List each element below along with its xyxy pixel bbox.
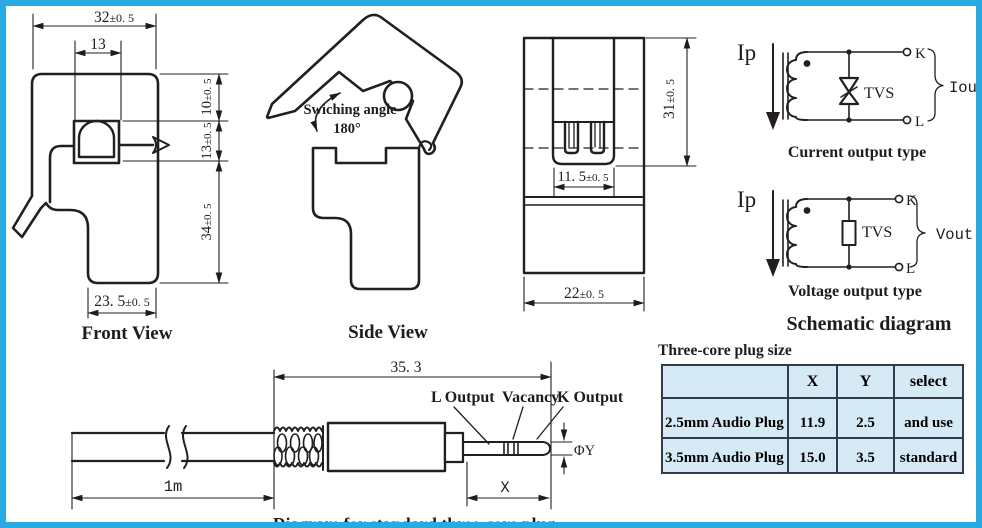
- table-row: 3.5mm Audio Plug 15.0 3.5 standard: [662, 438, 963, 473]
- table-header-row: X Y select: [662, 365, 963, 398]
- plug-x-cell: 15.0: [788, 438, 837, 473]
- plug-ring-grooves: [504, 442, 518, 455]
- current-terminal-k-label: K: [915, 46, 926, 62]
- voltage-terminal-l-label: L: [906, 261, 915, 277]
- schematic-section-title: Schematic diagram: [787, 313, 952, 335]
- side-angle-label: Swiching angle: [303, 102, 397, 118]
- current-brace: [928, 49, 943, 121]
- plug-handle: [328, 423, 445, 471]
- current-polarity-dot: [804, 60, 811, 67]
- current-tvs-triangle-bottom: [840, 92, 858, 104]
- plug-leader-lines: [454, 407, 563, 444]
- side-jaw-outline: [267, 15, 462, 154]
- front-dim-top: 32±0. 5: [94, 9, 134, 26]
- side-view: Swiching angle 180° Side View: [267, 15, 462, 343]
- plug-y-cell: 3.5: [837, 438, 894, 473]
- voltage-terminal-k-label: K: [906, 193, 917, 209]
- plug-boot-top-edge: [274, 428, 322, 432]
- side-angle-value: 180°: [333, 121, 361, 137]
- front-body-outline: [13, 74, 158, 283]
- header-y-cell: Y: [837, 365, 894, 398]
- plug-boot-coils: [274, 434, 322, 465]
- plug-diagram-caption: Diagram for standard three-core plug: [273, 514, 555, 522]
- current-terminal-l: [903, 116, 910, 123]
- back-dim-slot: 11. 5±0. 5: [557, 169, 609, 185]
- plug-name-cell: 3.5mm Audio Plug: [662, 438, 788, 473]
- voltage-ip-label: Ip: [737, 187, 756, 212]
- side-view-title: Side View: [348, 322, 428, 343]
- current-caption: Current output type: [788, 144, 926, 161]
- voltage-tvs-label: TVS: [862, 224, 892, 241]
- plug-dim-cable: 1m: [164, 478, 183, 496]
- plug-shaft: [463, 442, 543, 455]
- schematic-current: Ip TVS K L Iout Current output type: [737, 40, 976, 161]
- header-blank-cell: [662, 365, 788, 398]
- current-tvs-triangle-top: [840, 78, 858, 92]
- front-jaw-seam-left: [50, 146, 74, 202]
- front-dim-window-width: 13: [90, 36, 106, 53]
- plug-size-table: X Y select 2.5mm Audio Plug 11.9 2.5 and…: [661, 364, 964, 474]
- front-dimensions: [33, 14, 228, 318]
- back-view: 11. 5±0. 5 31±0. 5 22±0. 5: [524, 38, 696, 311]
- datasheet-canvas: 32±0. 5 13 10±0. 5 13±0. 5 34±0. 5 23. 5…: [0, 0, 982, 528]
- front-dim-bottom: 23. 5±0. 5: [94, 293, 150, 310]
- header-x-cell: X: [788, 365, 837, 398]
- front-view-title: Front View: [82, 323, 173, 344]
- plug-dim-diameter: ΦY: [574, 443, 596, 459]
- plug-select-cell: and use: [894, 398, 963, 438]
- plug-dim-x: X: [500, 479, 510, 497]
- current-terminal-k: [903, 48, 910, 55]
- current-terminal-l-label: L: [915, 114, 924, 130]
- current-ip-label: Ip: [737, 40, 756, 65]
- schematic-voltage: Ip TVS K L Vout Voltage output type Sche…: [737, 187, 973, 335]
- header-select-cell: select: [894, 365, 963, 398]
- voltage-ip-arrowhead: [766, 259, 780, 277]
- voltage-terminal-l: [895, 263, 902, 270]
- current-output-label: Iout: [949, 79, 976, 97]
- back-body-outline: [524, 38, 644, 273]
- plug-tip: [543, 442, 550, 455]
- voltage-caption: Voltage output type: [788, 283, 922, 300]
- voltage-tvs-box: [843, 221, 856, 245]
- front-view: 32±0. 5 13 10±0. 5 13±0. 5 34±0. 5 23. 5…: [13, 9, 228, 344]
- back-dim-height: 31±0. 5: [661, 79, 678, 119]
- front-dim-h13: 13±0. 5: [199, 122, 215, 160]
- front-latch: [153, 137, 169, 153]
- plug-x-cell: 11.9: [788, 398, 837, 438]
- front-dim-h10: 10±0. 5: [199, 78, 215, 116]
- voltage-terminal-k: [895, 195, 902, 202]
- plug-table-title: Three-core plug size: [658, 342, 792, 360]
- voltage-output-label: Vout: [936, 226, 973, 244]
- current-ip-arrowhead: [766, 112, 780, 130]
- table-row: 2.5mm Audio Plug 11.9 2.5 and use: [662, 398, 963, 438]
- plug-diagram: 1m 35. 3 L Output Vacancy K Output ΦY X …: [72, 359, 624, 522]
- plug-y-cell: 2.5: [837, 398, 894, 438]
- side-body-outline: [313, 148, 419, 289]
- plug-cable: [72, 433, 274, 461]
- plug-label-vacancy: Vacancy: [502, 389, 559, 406]
- plug-dim-total: 35. 3: [391, 359, 422, 376]
- plug-select-cell: standard: [894, 438, 963, 473]
- plug-name-cell: 2.5mm Audio Plug: [662, 398, 788, 438]
- back-dim-width: 22±0. 5: [564, 285, 604, 302]
- plug-label-k-output: K Output: [557, 389, 624, 406]
- front-dim-h34: 34±0. 5: [199, 203, 215, 241]
- plug-neck: [445, 433, 463, 462]
- current-tvs-label: TVS: [864, 85, 894, 102]
- back-prong-2-slot: [595, 122, 600, 147]
- voltage-polarity-dot: [804, 207, 811, 214]
- back-prong-1-slot: [569, 122, 574, 147]
- plug-label-l-output: L Output: [431, 389, 495, 406]
- back-dimensions: [524, 38, 696, 311]
